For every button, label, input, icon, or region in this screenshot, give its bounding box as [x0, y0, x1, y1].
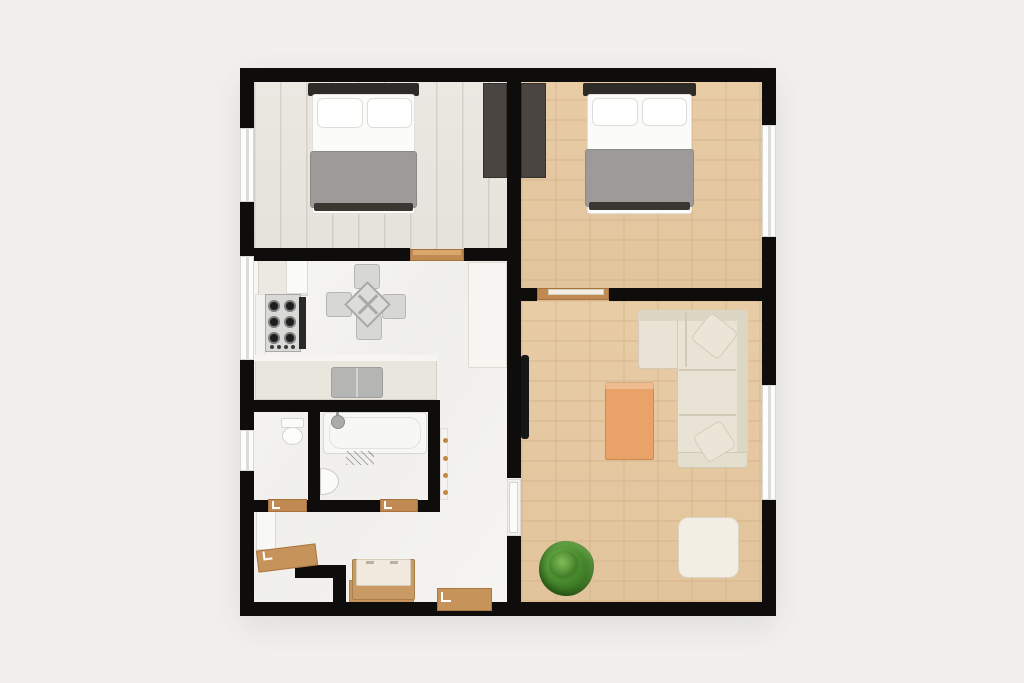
chest-lid — [356, 559, 411, 586]
door-storage-swing — [262, 550, 272, 560]
bed-1-footboard — [314, 203, 413, 211]
wall-left-mid-2 — [240, 360, 254, 430]
wall-bathroom-bottom-right — [418, 500, 440, 512]
door-wc-swing — [272, 501, 280, 509]
pouf — [678, 517, 739, 578]
wall-right-lower — [762, 500, 776, 616]
wardrobe-bedroom-1 — [483, 83, 507, 178]
bath-mat — [346, 451, 374, 465]
sofa-seam-2 — [679, 369, 736, 371]
wall-bathroom-right — [428, 400, 440, 512]
stove-burner-6 — [284, 332, 296, 344]
door-bathroom-swing — [384, 501, 392, 509]
coat-hook-3 — [443, 473, 448, 478]
kitchen-island — [468, 262, 507, 368]
coat-hook-2 — [443, 456, 448, 461]
door-living-leaf — [509, 482, 518, 533]
door-bedroom-2-leaf — [548, 289, 604, 295]
wall-bedroom1-bottom-left — [254, 248, 410, 261]
kitchen-fridge — [286, 260, 308, 294]
bed-2-blanket — [585, 149, 694, 207]
door-bedroom-1-leaf — [413, 250, 461, 255]
wall-right-mid — [762, 237, 776, 385]
wall-bedroom2-bottom-left — [521, 288, 537, 301]
stove-knob-1 — [270, 345, 274, 349]
wall-bathroom-bottom-mid — [307, 500, 380, 512]
tv-screen — [521, 355, 529, 439]
stove-knob-3 — [284, 345, 288, 349]
stove-burner-1 — [268, 300, 280, 312]
hall-cabinet — [256, 508, 276, 550]
wall-left-upper — [240, 68, 254, 128]
coffee-table — [605, 382, 654, 460]
window-bedroom-1-frame — [246, 128, 249, 202]
bed-1-pillow-left — [317, 98, 363, 128]
wall-left-mid-1 — [240, 202, 254, 256]
wall-storage-right — [333, 565, 346, 616]
toilet-bowl — [282, 427, 303, 445]
wall-left-lower — [240, 471, 254, 616]
window-wc-frame — [246, 430, 249, 471]
stove-knob-2 — [277, 345, 281, 349]
sofa-seam-1 — [685, 312, 687, 367]
wardrobe-bedroom-2 — [521, 83, 546, 178]
sofa-back-top — [638, 310, 748, 321]
kitchen-counter-edge — [255, 355, 437, 361]
wall-bedroom2-bottom-right — [609, 288, 762, 301]
oven-strip — [299, 297, 306, 349]
apartment-floor-plan — [0, 0, 1024, 683]
window-living-frame — [768, 385, 771, 500]
chest-handle-left — [366, 561, 374, 564]
wall-bedroom1-bottom-right — [464, 248, 507, 261]
shower-head — [331, 415, 345, 429]
wall-center-upper — [507, 82, 521, 478]
stove-burner-2 — [284, 300, 296, 312]
window-bedroom-2-frame — [768, 125, 771, 237]
wall-bathroom-top — [254, 400, 440, 412]
bed-2-pillow-right — [642, 98, 687, 126]
stove-burner-5 — [268, 332, 280, 344]
stove-burner-3 — [268, 316, 280, 328]
kitchen-sink-divider — [356, 368, 358, 397]
sofa-seam-3 — [679, 414, 736, 416]
bed-1-pillow-right — [367, 98, 412, 128]
stove-knob-4 — [291, 345, 295, 349]
plant-crown — [549, 551, 579, 579]
wall-bathroom-bottom-left — [254, 500, 268, 512]
bed-1-blanket — [310, 151, 417, 208]
coat-hook-1 — [443, 438, 448, 443]
bed-2-pillow-left — [592, 98, 638, 126]
wall-right-upper — [762, 68, 776, 125]
coat-hook-4 — [443, 490, 448, 495]
door-entrance-swing — [441, 592, 451, 602]
coffee-table-edge — [605, 382, 654, 389]
wall-center-lower — [507, 536, 521, 616]
wall-wc-divider — [308, 412, 320, 512]
wall-top — [240, 68, 776, 82]
sofa-back-right — [737, 310, 748, 468]
chest-handle-right — [390, 561, 398, 564]
window-kitchen-frame — [246, 256, 249, 360]
stove-burner-4 — [284, 316, 296, 328]
bed-2-footboard — [589, 202, 690, 210]
